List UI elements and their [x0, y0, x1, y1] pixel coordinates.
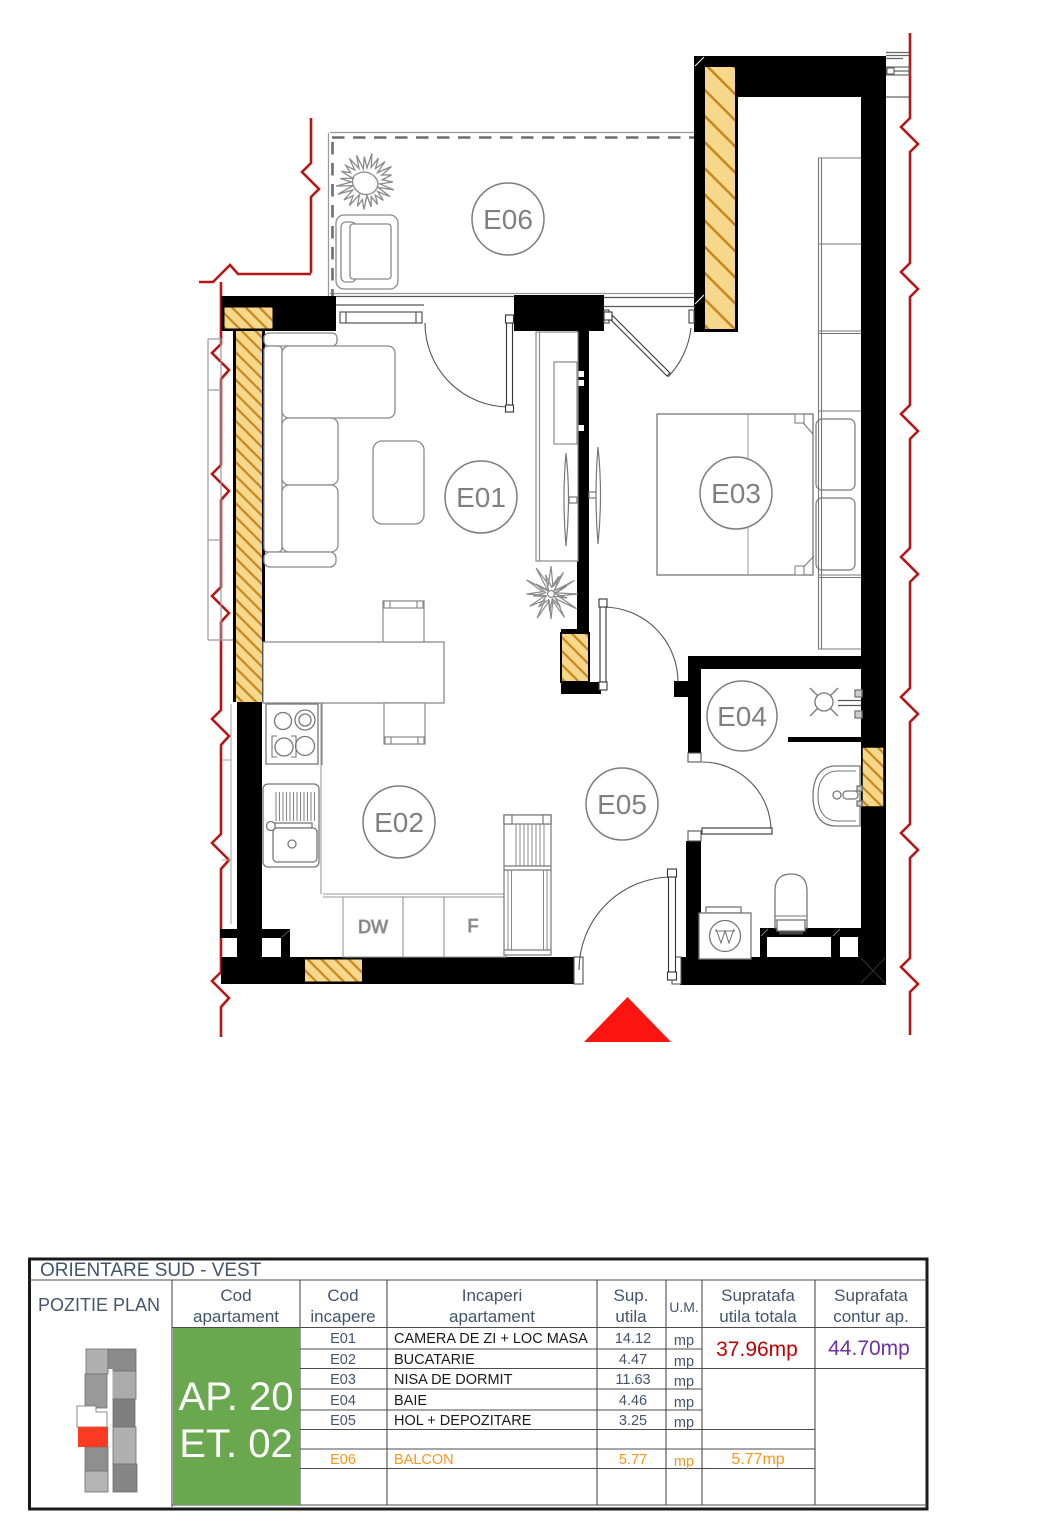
svg-text:E02: E02: [374, 807, 424, 838]
svg-text:Cod: Cod: [220, 1286, 251, 1305]
svg-text:E02: E02: [330, 1352, 356, 1368]
svg-text:U.M.: U.M.: [669, 1299, 699, 1315]
svg-text:mp: mp: [674, 1395, 694, 1411]
svg-text:contur ap.: contur ap.: [833, 1307, 909, 1326]
svg-text:mp: mp: [674, 1415, 694, 1431]
svg-text:mp: mp: [674, 1374, 694, 1390]
svg-text:ET. 02: ET. 02: [179, 1422, 292, 1466]
svg-text:BUCATARIE: BUCATARIE: [394, 1352, 475, 1368]
svg-text:37.96mp: 37.96mp: [716, 1338, 798, 1361]
svg-text:apartament: apartament: [449, 1307, 535, 1326]
svg-text:Supratafa: Supratafa: [721, 1286, 795, 1305]
svg-text:E03: E03: [711, 478, 761, 509]
svg-text:BALCON: BALCON: [394, 1452, 454, 1468]
svg-text:Cod: Cod: [327, 1286, 358, 1305]
svg-text:incapere: incapere: [310, 1307, 375, 1326]
svg-text:5.77: 5.77: [619, 1452, 647, 1468]
svg-text:POZITIE PLAN: POZITIE PLAN: [38, 1295, 160, 1315]
svg-text:mp: mp: [674, 1333, 694, 1349]
svg-text:HOL + DEPOZITARE: HOL + DEPOZITARE: [394, 1413, 532, 1429]
svg-text:mp: mp: [674, 1454, 694, 1470]
svg-text:NISA DE DORMIT: NISA DE DORMIT: [394, 1372, 513, 1388]
svg-text:E05: E05: [330, 1413, 356, 1429]
svg-text:3.25: 3.25: [619, 1413, 647, 1429]
svg-text:apartament: apartament: [193, 1307, 279, 1326]
svg-text:Incaperi: Incaperi: [462, 1286, 522, 1305]
svg-text:14.12: 14.12: [615, 1331, 651, 1347]
svg-text:F: F: [468, 916, 479, 936]
svg-text:CAMERA DE ZI + LOC MASA: CAMERA DE ZI + LOC MASA: [394, 1331, 588, 1347]
svg-text:E01: E01: [330, 1331, 356, 1347]
svg-text:E05: E05: [597, 789, 647, 820]
svg-text:E03: E03: [330, 1372, 356, 1388]
svg-text:mp: mp: [674, 1354, 694, 1370]
svg-text:utila: utila: [615, 1307, 647, 1326]
svg-text:44.70mp: 44.70mp: [828, 1337, 910, 1360]
svg-text:E04: E04: [717, 701, 767, 732]
svg-text:utila totala: utila totala: [719, 1307, 797, 1326]
svg-text:5.77mp: 5.77mp: [731, 1451, 784, 1468]
svg-text:BAIE: BAIE: [394, 1393, 427, 1409]
svg-text:ORIENTARE SUD - VEST: ORIENTARE SUD - VEST: [40, 1260, 262, 1281]
svg-text:11.63: 11.63: [615, 1372, 650, 1388]
svg-text:Sup.: Sup.: [614, 1286, 649, 1305]
svg-text:E04: E04: [330, 1393, 356, 1409]
svg-text:E06: E06: [330, 1452, 356, 1468]
svg-text:E06: E06: [483, 204, 533, 235]
svg-text:4.46: 4.46: [619, 1393, 647, 1409]
svg-text:Suprafata: Suprafata: [834, 1286, 908, 1305]
svg-text:E01: E01: [456, 482, 506, 513]
svg-text:AP. 20: AP. 20: [179, 1375, 294, 1419]
svg-text:DW: DW: [358, 917, 388, 937]
svg-text:4.47: 4.47: [619, 1352, 647, 1368]
